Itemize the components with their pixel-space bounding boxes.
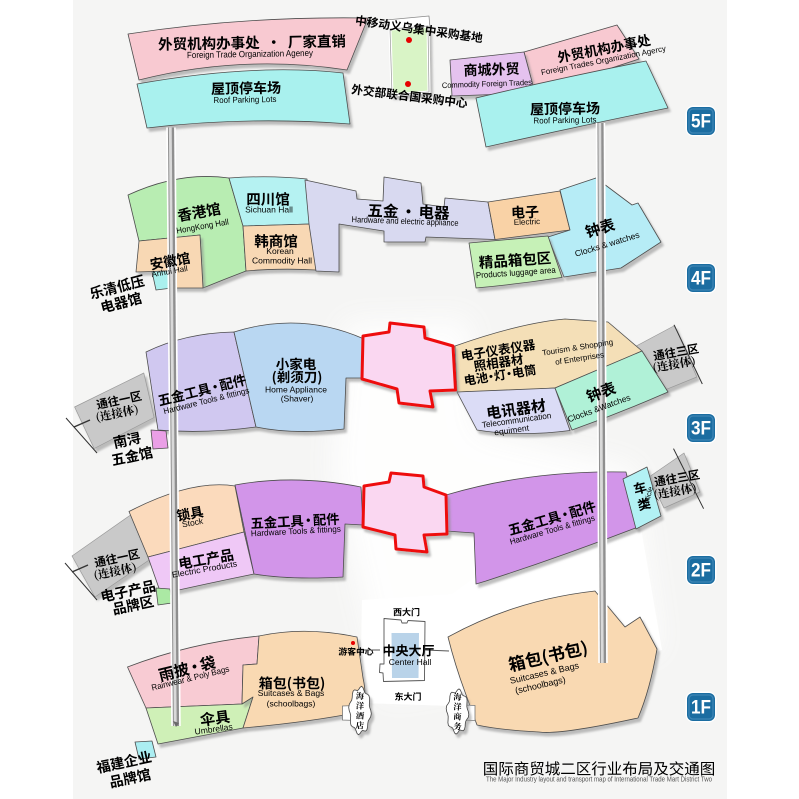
svg-text:Roof Parking Lots: Roof Parking Lots <box>533 114 596 125</box>
svg-text:2F: 2F <box>691 561 711 582</box>
svg-text:Korean: Korean <box>266 246 294 256</box>
svg-text:The Major Industry layout and: The Major Industry layout and transport … <box>486 775 712 784</box>
svg-text:Center Hall: Center Hall <box>389 657 432 667</box>
svg-text:Electric: Electric <box>514 217 541 227</box>
svg-text:Sichuan Hall: Sichuan Hall <box>245 205 293 215</box>
svg-text:(schoolbags): (schoolbags) <box>267 699 316 709</box>
svg-text:Commodity Hall: Commodity Hall <box>252 256 312 266</box>
svg-text:4F: 4F <box>691 269 711 290</box>
svg-text:3F: 3F <box>691 419 711 440</box>
svg-text:(Shaver): (Shaver) <box>281 394 314 404</box>
svg-text:Suitcases & Bags: Suitcases & Bags <box>258 688 325 698</box>
svg-text:Roof Parking Lots: Roof Parking Lots <box>213 94 276 105</box>
svg-text:1F: 1F <box>691 698 711 719</box>
svg-text:5F: 5F <box>691 112 711 133</box>
